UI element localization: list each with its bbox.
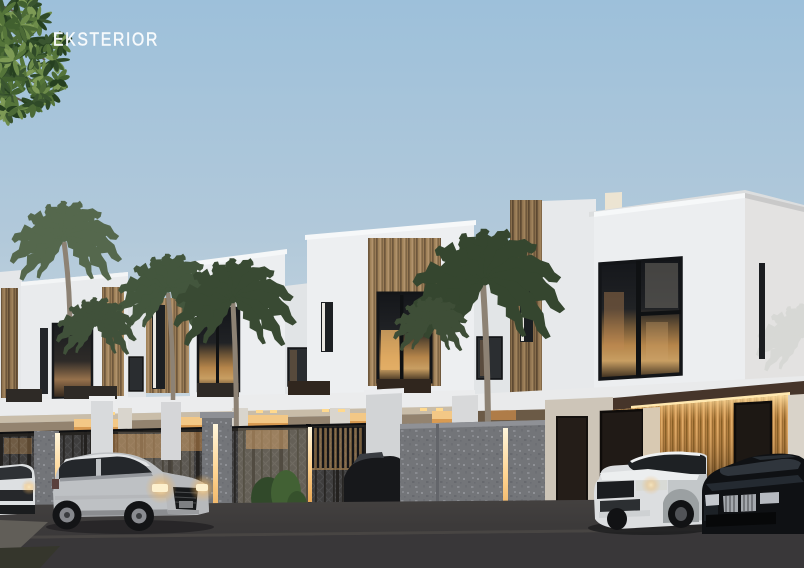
svg-text:EKSTERIOR: EKSTERIOR [53, 29, 159, 50]
